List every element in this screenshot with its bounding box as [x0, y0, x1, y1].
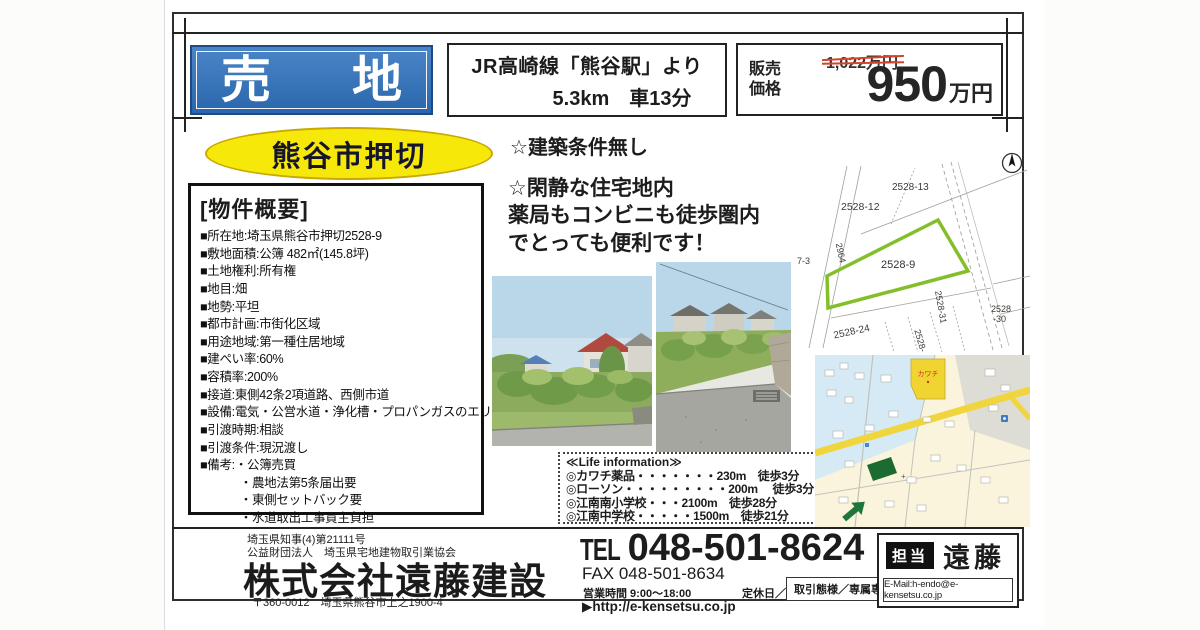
- pharmacy-label: カワチ: [918, 370, 939, 378]
- note-line: 薬局もコンビニも徒歩圏内: [508, 202, 760, 229]
- overview-item: ■土地権利:所有権: [200, 263, 481, 281]
- reg-mark-left-foot: [172, 117, 202, 119]
- street-map: カワチ +: [815, 355, 1030, 532]
- overview-item: ■建ぺい率:60%: [200, 351, 481, 369]
- overview-item: ・水道取出工事買主負担: [200, 510, 481, 528]
- parcel-label: 2528: [991, 304, 1011, 314]
- sale-banner-inner: 売 地: [196, 51, 427, 109]
- overview-item: ■所在地:埼玉県熊谷市押切2528-9: [200, 228, 481, 246]
- reg-mark-left: [184, 18, 186, 132]
- price-box: 販売 価格 1,022万円 950 万円: [736, 43, 1003, 116]
- life-info-box: ≪Life information≫ ◎カワチ薬品・・・・・・・230m 徒歩3…: [558, 452, 845, 524]
- sale-banner-text-left: 売: [221, 55, 271, 105]
- staff-row: 担当 遠藤: [879, 535, 1017, 575]
- scanned-flyer: 売 地 JR高崎線「熊谷駅」より 5.3km 車13分 販売 価格 1,022万…: [0, 0, 1200, 630]
- access-line1: JR高崎線「熊谷駅」より: [457, 50, 717, 79]
- overview-item: ■地勢:平坦: [200, 299, 481, 317]
- parcel-label: 2528-31: [933, 290, 949, 324]
- photo-lot-road: [656, 262, 791, 452]
- sale-banner-text-right: 地: [352, 55, 402, 105]
- temple-mark: +: [901, 472, 906, 481]
- parcel-label: 2528-24: [833, 323, 872, 341]
- note-line: でとっても便利です！: [508, 230, 760, 257]
- parcel-label: 2528-12: [841, 201, 880, 213]
- sale-banner: 売 地: [190, 45, 433, 115]
- parcel-label: 2528-13: [892, 182, 929, 193]
- reg-mark-right: [1006, 18, 1008, 132]
- plat-map: 2528-13 2528-12 2528-9 2528-24 2528- 252…: [795, 162, 1030, 357]
- overview-item: ■接道:東側42条2項道路、西側市道: [200, 387, 481, 405]
- station-access-box: JR高崎線「熊谷駅」より 5.3km 車13分: [447, 43, 727, 117]
- note-neighborhood: ☆閑静な住宅地内 薬局もコンビニも徒歩圏内 でとっても便利です！: [508, 175, 760, 257]
- location-badge: 熊谷市押切: [205, 127, 493, 180]
- access-line2: 5.3km 車13分: [457, 82, 717, 111]
- price-label-line1: 販売: [749, 60, 781, 80]
- overview-title: [物件概要]: [200, 192, 481, 224]
- overview-list: ■所在地:埼玉県熊谷市押切2528-9■敷地面積:公簿 482㎡(145.8坪)…: [200, 228, 481, 528]
- email-box: E-Mail:h-endo@e-kensetsu.co.jp: [883, 578, 1013, 602]
- overview-item: ■設備:電気・公営水道・浄化槽・プロパンガスのエリア: [200, 404, 481, 422]
- pharmacy-building: [911, 359, 945, 399]
- overview-item: ■引渡時期:相談: [200, 422, 481, 440]
- life-info-list: ◎カワチ薬品・・・・・・・230m 徒歩3分◎ローソン・・・・・・・・・200m…: [566, 470, 837, 524]
- new-price-value: 950: [867, 55, 947, 113]
- price-label: 販売 価格: [749, 60, 781, 100]
- parcel-label: 7-3: [797, 256, 810, 266]
- company-address: 〒360-0012 埼玉県熊谷市上之1900-4: [252, 594, 443, 610]
- photo-lot-front: [492, 276, 652, 446]
- life-info-item: ◎江南中学校・・・・・1500m 徒歩21分: [566, 510, 837, 524]
- tel-label: TEL: [580, 532, 620, 568]
- staff-box: 担当 遠藤 E-Mail:h-endo@e-kensetsu.co.jp: [877, 533, 1019, 608]
- note-line: ☆閑静な住宅地内: [508, 175, 760, 202]
- overview-item: ■都市計画:市街化区域: [200, 316, 481, 334]
- road-label: 2964: [834, 242, 848, 264]
- life-info-item: ◎ローソン・・・・・・・・・200m 徒歩3分: [566, 483, 837, 497]
- overview-box: [物件概要] ■所在地:埼玉県熊谷市押切2528-9■敷地面積:公簿 482㎡(…: [188, 183, 484, 515]
- website-url: ▶http://e-kensetsu.co.jp: [582, 599, 736, 615]
- staff-label: 担当: [886, 542, 934, 569]
- header-rule: [172, 32, 1024, 34]
- price-label-line2: 価格: [749, 80, 781, 100]
- fax-number: FAX 048-501-8634: [582, 564, 725, 584]
- new-price: 950 万円: [867, 55, 993, 113]
- new-price-unit: 万円: [949, 76, 993, 108]
- overview-item: ■地目:畑: [200, 281, 481, 299]
- reg-mark-right-foot: [992, 117, 1024, 119]
- overview-item: ・農地法第5条届出要: [200, 475, 481, 493]
- overview-item: ■用途地域:第一種住居地域: [200, 334, 481, 352]
- overview-item: ■容積率:200%: [200, 369, 481, 387]
- parcel-label: -30: [993, 314, 1006, 324]
- location-badge-text: 熊谷市押切: [271, 133, 426, 175]
- staff-name: 遠藤: [943, 536, 1005, 575]
- overview-item: ■備考:・公簿売買: [200, 457, 481, 475]
- parcel-label-subject: 2528-9: [881, 259, 915, 271]
- scan-edge-left: [164, 0, 165, 630]
- life-info-title: ≪Life information≫: [566, 456, 837, 470]
- overview-item: ■敷地面積:公簿 482㎡(145.8坪): [200, 246, 481, 264]
- overview-item: ・東側セットバック要: [200, 492, 481, 510]
- note-no-building-condition: ☆建築条件無し: [510, 131, 648, 160]
- overview-item: ■引渡条件:現況渡し: [200, 440, 481, 458]
